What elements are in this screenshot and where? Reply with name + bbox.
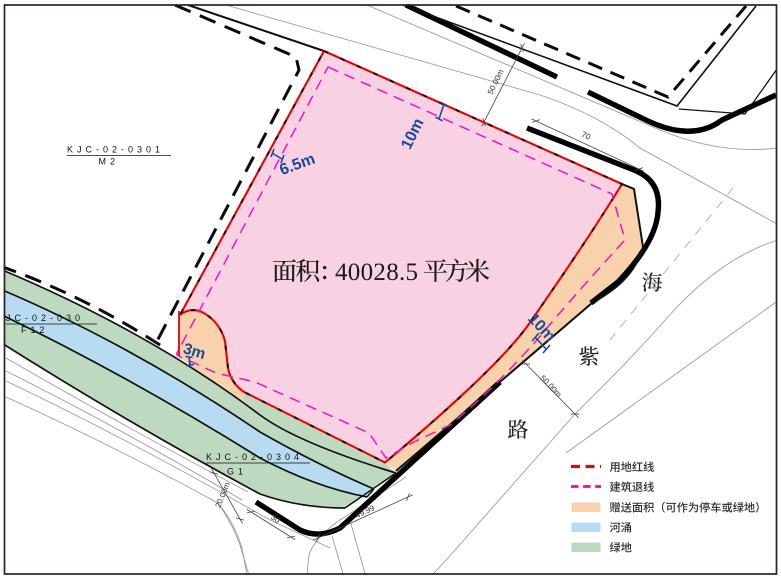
svg-text:KJC-02-0301: KJC-02-0301 (67, 145, 164, 155)
svg-text:M2: M2 (99, 157, 120, 167)
svg-text:40028.5: 40028.5 (335, 259, 418, 286)
svg-text:F12: F12 (21, 325, 49, 335)
svg-text:JC-02-030: JC-02-030 (6, 313, 84, 323)
svg-text:KJC-02-0304: KJC-02-0304 (206, 452, 303, 462)
svg-text:G1: G1 (227, 467, 247, 477)
